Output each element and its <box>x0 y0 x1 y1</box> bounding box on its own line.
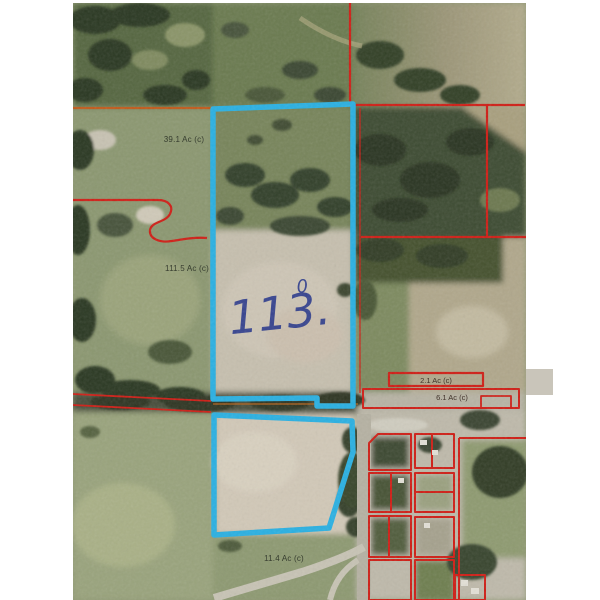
photo-grain <box>73 3 526 600</box>
aerial-parcel-map: 39.1 Ac (c) 111.5 Ac (c) 2.1 Ac (c) 6.1 … <box>0 0 600 600</box>
photo-fold <box>526 369 553 395</box>
aerial-photo: 39.1 Ac (c) 111.5 Ac (c) 2.1 Ac (c) 6.1 … <box>66 3 528 600</box>
scanned-map-page: 39.1 Ac (c) 111.5 Ac (c) 2.1 Ac (c) 6.1 … <box>0 0 600 600</box>
